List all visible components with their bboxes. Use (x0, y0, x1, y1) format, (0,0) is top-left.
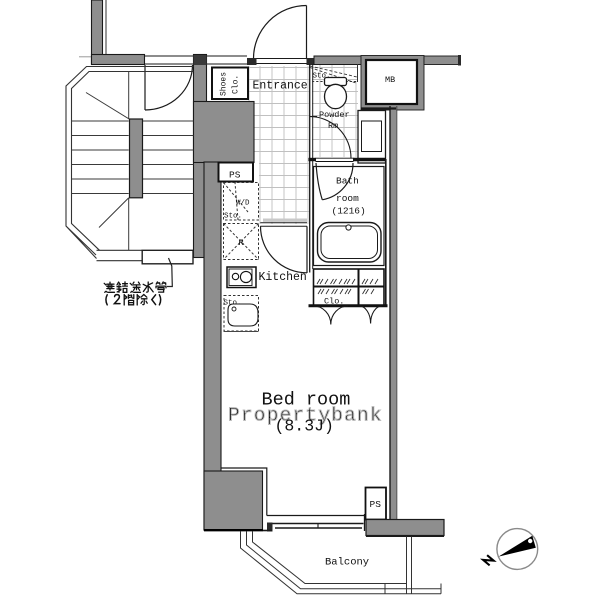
svg-text:Bath: Bath (336, 176, 359, 187)
svg-text:Balcony: Balcony (325, 557, 369, 569)
svg-text:Sto.: Sto. (224, 300, 242, 308)
svg-text:Bed room: Bed room (262, 390, 351, 411)
svg-text:W/D: W/D (236, 200, 250, 208)
svg-text:Clo.: Clo. (232, 75, 241, 94)
svg-text:Sto.: Sto. (224, 213, 242, 221)
svg-text:Shoes: Shoes (220, 72, 229, 96)
svg-text:Kitchen: Kitchen (259, 271, 307, 284)
svg-text:PS: PS (370, 499, 382, 510)
svg-text:R: R (239, 238, 244, 248)
svg-text:MB: MB (385, 75, 395, 85)
svg-text:Entrance: Entrance (253, 80, 308, 93)
svg-text:(1216): (1216) (332, 206, 366, 217)
svg-text:PS: PS (229, 170, 241, 181)
svg-text:room: room (336, 193, 359, 204)
svg-text:(8.3J): (8.3J) (275, 417, 334, 436)
